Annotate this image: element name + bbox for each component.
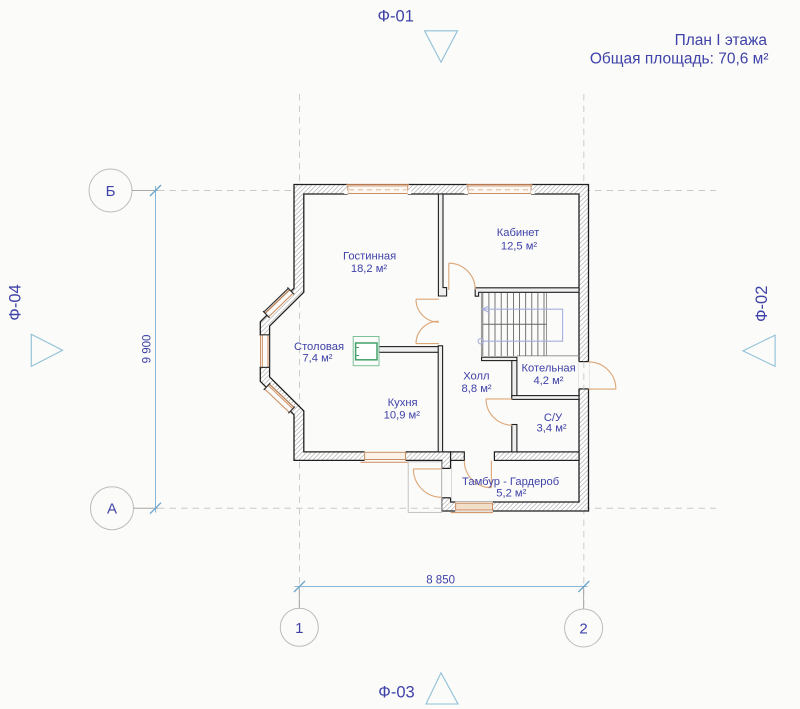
svg-text:Ф-03: Ф-03: [378, 684, 414, 702]
svg-text:Кухня: Кухня: [388, 397, 418, 409]
svg-text:8,8 м²: 8,8 м²: [462, 383, 492, 395]
svg-text:8 850: 8 850: [426, 575, 455, 587]
svg-text:Ф-04: Ф-04: [7, 284, 25, 320]
svg-text:Кабинет: Кабинет: [497, 227, 540, 239]
svg-text:1: 1: [295, 620, 303, 637]
svg-text:Ф-02: Ф-02: [753, 286, 771, 322]
svg-text:А: А: [107, 501, 117, 518]
svg-text:5,2 м²: 5,2 м²: [496, 488, 526, 500]
svg-text:12,5 м²: 12,5 м²: [501, 240, 538, 252]
svg-text:Общая площадь: 70,6 м²: Общая площадь: 70,6 м²: [590, 51, 769, 68]
svg-text:Котельная: Котельная: [522, 363, 576, 375]
svg-text:Холл: Холл: [463, 370, 489, 382]
svg-text:Ф-01: Ф-01: [377, 7, 413, 25]
svg-text:2: 2: [579, 621, 587, 638]
svg-text:10,9 м²: 10,9 м²: [384, 410, 421, 422]
svg-text:9 900: 9 900: [142, 335, 154, 364]
svg-text:18,2 м²: 18,2 м²: [351, 263, 388, 275]
svg-text:7,4 м²: 7,4 м²: [302, 352, 332, 364]
svg-text:3,4 м²: 3,4 м²: [537, 423, 567, 435]
svg-text:Тамбур - Гардероб: Тамбур - Гардероб: [462, 476, 559, 488]
svg-text:План I этажа: План I этажа: [675, 32, 768, 49]
svg-text:4,2 м²: 4,2 м²: [533, 375, 563, 387]
svg-text:Столовая: Столовая: [294, 341, 344, 353]
svg-text:Гостинная: Гостинная: [343, 251, 396, 263]
svg-text:Б: Б: [106, 183, 116, 200]
